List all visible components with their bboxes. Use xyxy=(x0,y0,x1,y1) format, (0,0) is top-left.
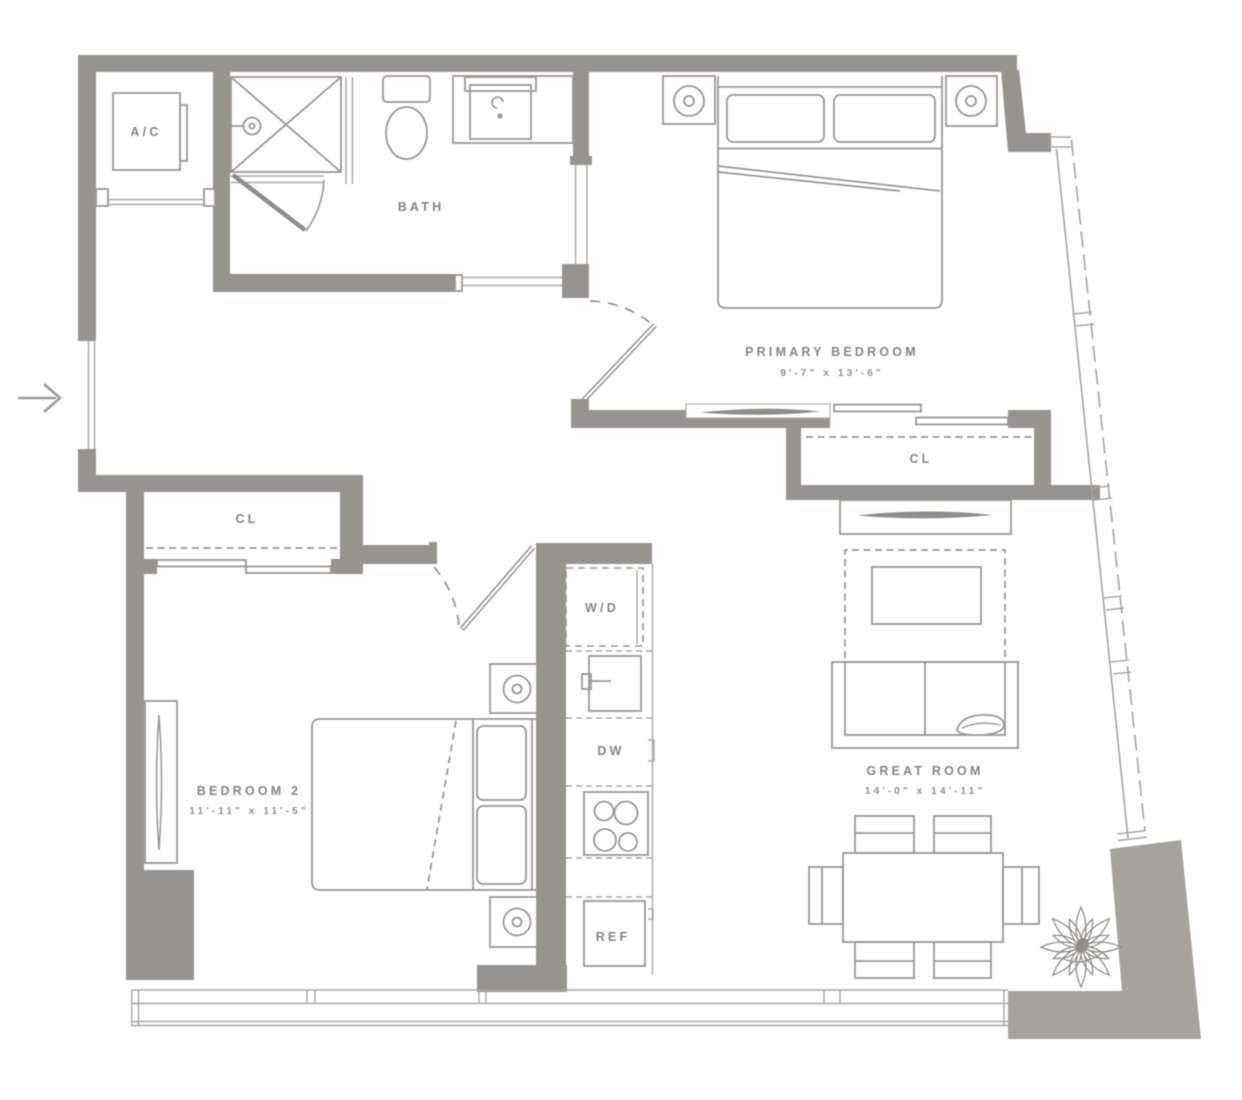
svg-text:DW: DW xyxy=(597,744,624,758)
svg-text:PRIMARY BEDROOM: PRIMARY BEDROOM xyxy=(745,345,919,359)
svg-text:CL: CL xyxy=(235,512,258,526)
svg-text:14'-0" x 14'-11": 14'-0" x 14'-11" xyxy=(865,786,986,797)
svg-text:GREAT ROOM: GREAT ROOM xyxy=(866,764,983,778)
svg-text:REF: REF xyxy=(596,930,631,944)
svg-text:W/D: W/D xyxy=(585,601,619,615)
svg-text:CL: CL xyxy=(909,452,932,466)
svg-text:9'-7" x 13'-6": 9'-7" x 13'-6" xyxy=(780,368,884,379)
svg-text:A/C: A/C xyxy=(130,125,161,139)
svg-text:BEDROOM 2: BEDROOM 2 xyxy=(197,784,302,798)
svg-text:BATH: BATH xyxy=(398,200,445,214)
svg-text:11'-11" x 11'-5": 11'-11" x 11'-5" xyxy=(189,806,308,817)
